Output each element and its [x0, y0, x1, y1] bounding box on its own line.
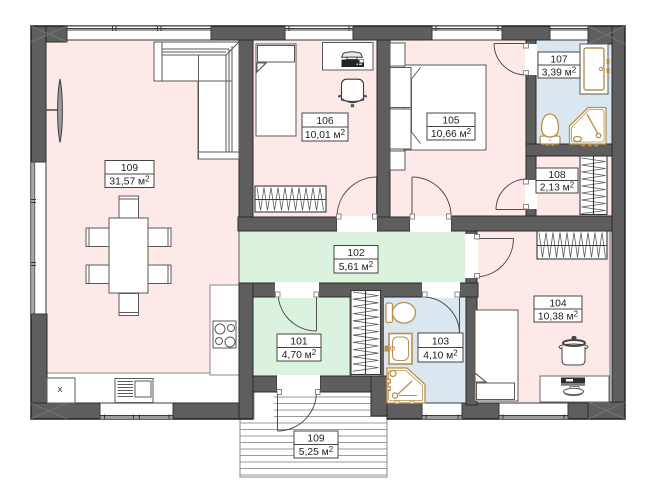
- svg-text:109: 109: [307, 434, 324, 445]
- svg-text:103: 103: [432, 337, 449, 348]
- svg-text:107: 107: [550, 55, 567, 66]
- svg-text:10,01 м2: 10,01 м2: [305, 128, 346, 141]
- svg-text:4,70 м2: 4,70 м2: [282, 348, 317, 361]
- svg-text:10,38 м2: 10,38 м2: [538, 310, 579, 323]
- svg-text:x: x: [58, 384, 63, 395]
- svg-text:4,10 м2: 4,10 м2: [423, 349, 458, 362]
- svg-text:3,39 м2: 3,39 м2: [542, 66, 577, 79]
- svg-text:5,25 м2: 5,25 м2: [299, 445, 334, 458]
- svg-text:104: 104: [549, 299, 566, 310]
- svg-text:108: 108: [548, 170, 565, 181]
- svg-text:101: 101: [290, 337, 307, 348]
- svg-text:102: 102: [347, 248, 364, 259]
- svg-text:2,13 м2: 2,13 м2: [540, 181, 575, 194]
- svg-text:10,66 м2: 10,66 м2: [431, 127, 472, 140]
- svg-text:105: 105: [442, 116, 459, 127]
- svg-text:109: 109: [121, 163, 138, 174]
- svg-text:5,61 м2: 5,61 м2: [339, 260, 374, 273]
- svg-text:31,57 м2: 31,57 м2: [109, 175, 150, 188]
- svg-text:106: 106: [316, 116, 333, 127]
